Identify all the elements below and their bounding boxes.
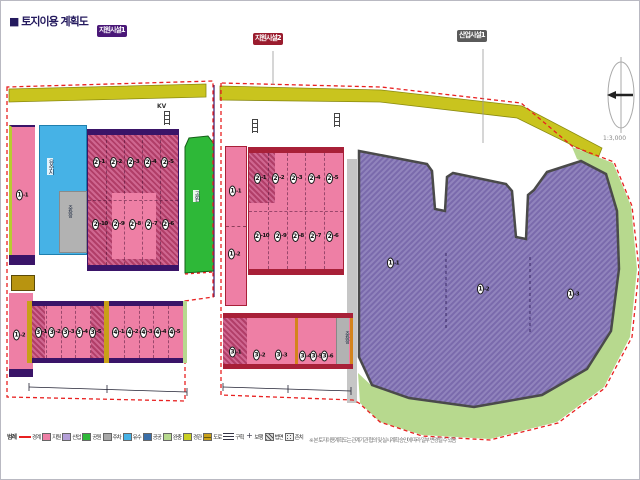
- stairs-icon: [164, 111, 170, 125]
- legend-item: 법면: [265, 433, 283, 441]
- legend-item: 유수: [123, 433, 141, 441]
- legend-label: 경계: [32, 433, 40, 441]
- legend-swatch: [62, 433, 71, 441]
- parcel-marker-wrap: 1-1: [387, 250, 399, 269]
- badge-support-facility-2: 지원시설2: [253, 33, 283, 45]
- parcel-marker: 2-3: [127, 157, 139, 168]
- parcel-marker: 2-1: [93, 157, 105, 168]
- parcel-strip-mid: [225, 146, 247, 306]
- parcel-marker-wrap: 3-2: [253, 342, 265, 361]
- parcel-marker-wrap: 1-3: [567, 281, 579, 300]
- buffer-sliver: [183, 301, 187, 363]
- legend-label: 경관: [193, 433, 201, 441]
- legend-swatch: [123, 433, 132, 441]
- legend-swatch: [203, 433, 212, 441]
- parcel-marker: 4-4: [154, 327, 166, 338]
- parcel-marker-wrap: 1-2: [477, 276, 489, 295]
- legend-label: 산업: [72, 433, 80, 441]
- stairs-icon: [334, 113, 340, 127]
- parcel-marker: 3-1: [35, 327, 47, 338]
- legend-swatch: [285, 433, 294, 441]
- legend-label: 지원: [52, 433, 60, 441]
- parcel-marker: 2-7: [145, 219, 157, 230]
- parking-label: 주차장: [344, 330, 349, 344]
- marker-row: 2-102-92-82-72-6: [251, 229, 341, 243]
- parcel-marker-wrap: 1-1: [229, 178, 241, 197]
- legend-item: 완충: [163, 433, 181, 441]
- legend-item: 보행: [245, 432, 262, 441]
- legend-swatch: [19, 436, 31, 438]
- legend-label: 도로: [213, 433, 221, 441]
- map-scale: 1:3,000: [603, 135, 626, 142]
- parcel-marker: 1-1: [229, 186, 241, 197]
- legend-item: 존치: [285, 433, 303, 441]
- parcel-marker-wrap: 3-3: [275, 342, 287, 361]
- badge-support-facility-1: 지원시설1: [97, 25, 127, 37]
- parking-cell: 주차장: [336, 318, 349, 364]
- road-band-left: [9, 84, 206, 102]
- park-parcel: [185, 136, 214, 273]
- parcel-marker: 2-3: [290, 173, 302, 184]
- legend-item: 주차: [103, 433, 121, 441]
- parcel-band: [9, 255, 35, 265]
- parcel-marker: 1-1: [387, 258, 399, 269]
- parcel-marker: 1-2: [13, 330, 25, 341]
- legend-swatch: [183, 433, 192, 441]
- legend-item: 산업: [62, 433, 80, 441]
- parcel-band: [9, 369, 33, 377]
- parcel-marker: 3-5: [89, 327, 101, 338]
- detention-basin-label: 유수지: [47, 158, 53, 175]
- support-row-mid: 주차장: [223, 313, 353, 369]
- parcel-marker: 3-4: [76, 327, 88, 338]
- utility-block: [11, 275, 35, 291]
- legend-label: 유수: [133, 433, 141, 441]
- marker-row: 3-13-23-33-43-5: [34, 325, 102, 339]
- land-use-plan: ■ 토지이용 계획도 지원시설1 지원시설2 산업시설1 유수지 주차장 2-1…: [0, 0, 640, 480]
- parcel-marker: 3-3: [62, 327, 74, 338]
- parcel-marker: 3-6: [321, 351, 333, 362]
- support-row-b: 4-14-24-34-44-5: [109, 301, 183, 363]
- legend-item: 도로: [203, 433, 221, 441]
- legend-swatch: [223, 433, 234, 441]
- marker-row: 2-12-22-32-42-5: [251, 171, 341, 185]
- powerline-label: KV: [157, 103, 166, 110]
- parcel-marker: 3-2: [48, 327, 60, 338]
- legend-item: 구획: [223, 433, 243, 441]
- legend-label: 보행: [254, 433, 262, 441]
- orange-divider: [295, 318, 298, 364]
- parcel-marker: 2-10: [254, 231, 269, 242]
- parking-parcel: 주차장: [59, 191, 87, 253]
- parcel-marker: 2-6: [162, 219, 174, 230]
- parcel-marker: 1-2: [477, 284, 489, 295]
- parcel-marker: 1-3: [567, 289, 579, 300]
- parcel-marker: 2-4: [308, 173, 320, 184]
- parcel-marker: 3-1: [229, 347, 241, 358]
- legend-label: 존치: [295, 433, 303, 441]
- marker-row: 2-12-22-32-42-5: [90, 155, 176, 169]
- parcel-marker: 2-9: [112, 219, 124, 230]
- parcel-marker: 2-5: [326, 173, 338, 184]
- parcel-marker: 2-4: [144, 157, 156, 168]
- marker-row: 2-102-92-82-72-6: [90, 217, 176, 231]
- legend-item: 공공: [143, 433, 161, 441]
- parcel-marker-wrap: 3-1: [229, 339, 241, 358]
- park-label: 공원: [193, 190, 199, 202]
- legend-item: 경관: [183, 433, 201, 441]
- orange-divider: [350, 318, 353, 364]
- legend-swatch: [82, 433, 91, 441]
- parcel-marker: 4-1: [112, 327, 124, 338]
- parcel-marker: 2-8: [129, 219, 141, 230]
- parcel-marker: 3-3: [275, 350, 287, 361]
- parcel-marker: 1-1: [16, 190, 28, 201]
- legend-swatch: [163, 433, 172, 441]
- legend-item: 공원: [82, 433, 100, 441]
- legend-label: 주차: [113, 433, 121, 441]
- parcel-marker: 2-2: [110, 157, 122, 168]
- legend-swatch: [103, 433, 112, 441]
- parcel-marker: 2-5: [161, 157, 173, 168]
- legend-item: 지원: [42, 433, 60, 441]
- parcel-marker: 2-7: [309, 231, 321, 242]
- park-label-wrap: 공원: [193, 187, 199, 206]
- legend-label: 법면: [275, 433, 283, 441]
- parcel-marker: 3-2: [253, 350, 265, 361]
- parcel-marker: 1-2: [228, 249, 240, 260]
- parcel-marker: 2-1: [254, 173, 266, 184]
- legend-swatch: [245, 432, 253, 441]
- legend-label: 완충: [173, 433, 181, 441]
- legend-label: 공원: [92, 433, 100, 441]
- support-row-a: 3-13-23-33-43-5: [32, 301, 104, 363]
- parcel-marker-wrap: 1-1: [16, 182, 28, 201]
- legend-title: 범례: [7, 432, 16, 441]
- legend-label: 구획: [235, 433, 243, 441]
- stairs-icon: [252, 119, 258, 133]
- parcel-marker: 2-10: [92, 219, 107, 230]
- compass-icon: [607, 57, 634, 133]
- page-title: ■ 토지이용 계획도: [9, 13, 88, 29]
- legend-swatch: [265, 433, 274, 441]
- parcel-marker-wrap: 1-2: [228, 241, 240, 260]
- parcel-marker: 4-2: [126, 327, 138, 338]
- badge-industrial-facility-1: 산업시설1: [457, 30, 487, 42]
- legend-swatch: [143, 433, 152, 441]
- parcel-marker: 2-8: [292, 231, 304, 242]
- parcel-marker-wrap: 1-2: [13, 322, 25, 341]
- marker-row: 4-14-24-34-44-5: [111, 325, 181, 339]
- parcel-marker: 4-3: [140, 327, 152, 338]
- support-block-left-main: 2-12-22-32-42-5 2-102-92-82-72-6: [87, 129, 179, 271]
- parcel-marker: 2-2: [272, 173, 284, 184]
- legend-label: 공공: [153, 433, 161, 441]
- legend-item: 경계: [19, 433, 40, 441]
- legend: 범례 경계지원산업공원주차유수공공완충경관도로구획보행법면존치: [7, 432, 303, 441]
- dimension-lines: [29, 383, 351, 396]
- parcel-marker: 4-5: [168, 327, 180, 338]
- parcel-marker: 2-6: [326, 231, 338, 242]
- parking-label: 주차장: [67, 204, 72, 218]
- legend-swatch: [42, 433, 51, 441]
- parcel-marker: 2-9: [274, 231, 286, 242]
- parcel-marker-wrap: 3-6: [321, 343, 333, 362]
- support-block-mid-main: 2-12-22-32-42-5 2-102-92-82-72-6: [248, 147, 344, 275]
- footnote: ※ 본 토지이용계획도는 관계기관 협의 및 실시계획 승인에 따라 일부 변경…: [309, 438, 635, 445]
